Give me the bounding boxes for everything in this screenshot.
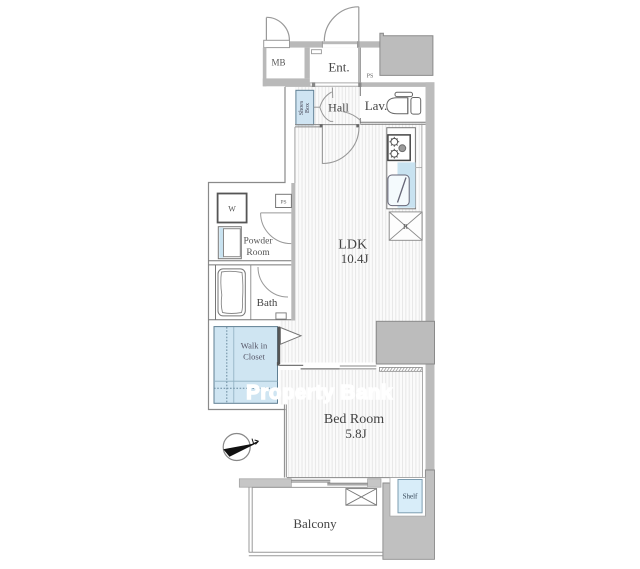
svg-text:Walk in: Walk in bbox=[241, 341, 268, 351]
svg-text:Balcony: Balcony bbox=[293, 516, 337, 531]
svg-text:PS: PS bbox=[367, 74, 374, 80]
svg-text:MB: MB bbox=[271, 58, 285, 68]
svg-text:Box: Box bbox=[305, 103, 311, 113]
svg-text:Bath: Bath bbox=[257, 297, 278, 309]
svg-text:Ent.: Ent. bbox=[328, 60, 349, 75]
svg-text:10.4J: 10.4J bbox=[341, 251, 369, 266]
svg-text:PS: PS bbox=[280, 200, 286, 206]
svg-text:Room: Room bbox=[246, 248, 270, 258]
svg-text:W: W bbox=[228, 205, 236, 214]
svg-text:5.8J: 5.8J bbox=[345, 426, 366, 441]
svg-text:Lav.: Lav. bbox=[365, 98, 388, 113]
svg-text:Bed Room: Bed Room bbox=[324, 412, 384, 427]
svg-text:Property Bank: Property Bank bbox=[246, 381, 393, 404]
svg-text:Powder: Powder bbox=[243, 237, 273, 247]
svg-text:Shelf: Shelf bbox=[403, 493, 418, 501]
svg-text:Closet: Closet bbox=[243, 352, 265, 362]
svg-text:R: R bbox=[403, 222, 408, 231]
